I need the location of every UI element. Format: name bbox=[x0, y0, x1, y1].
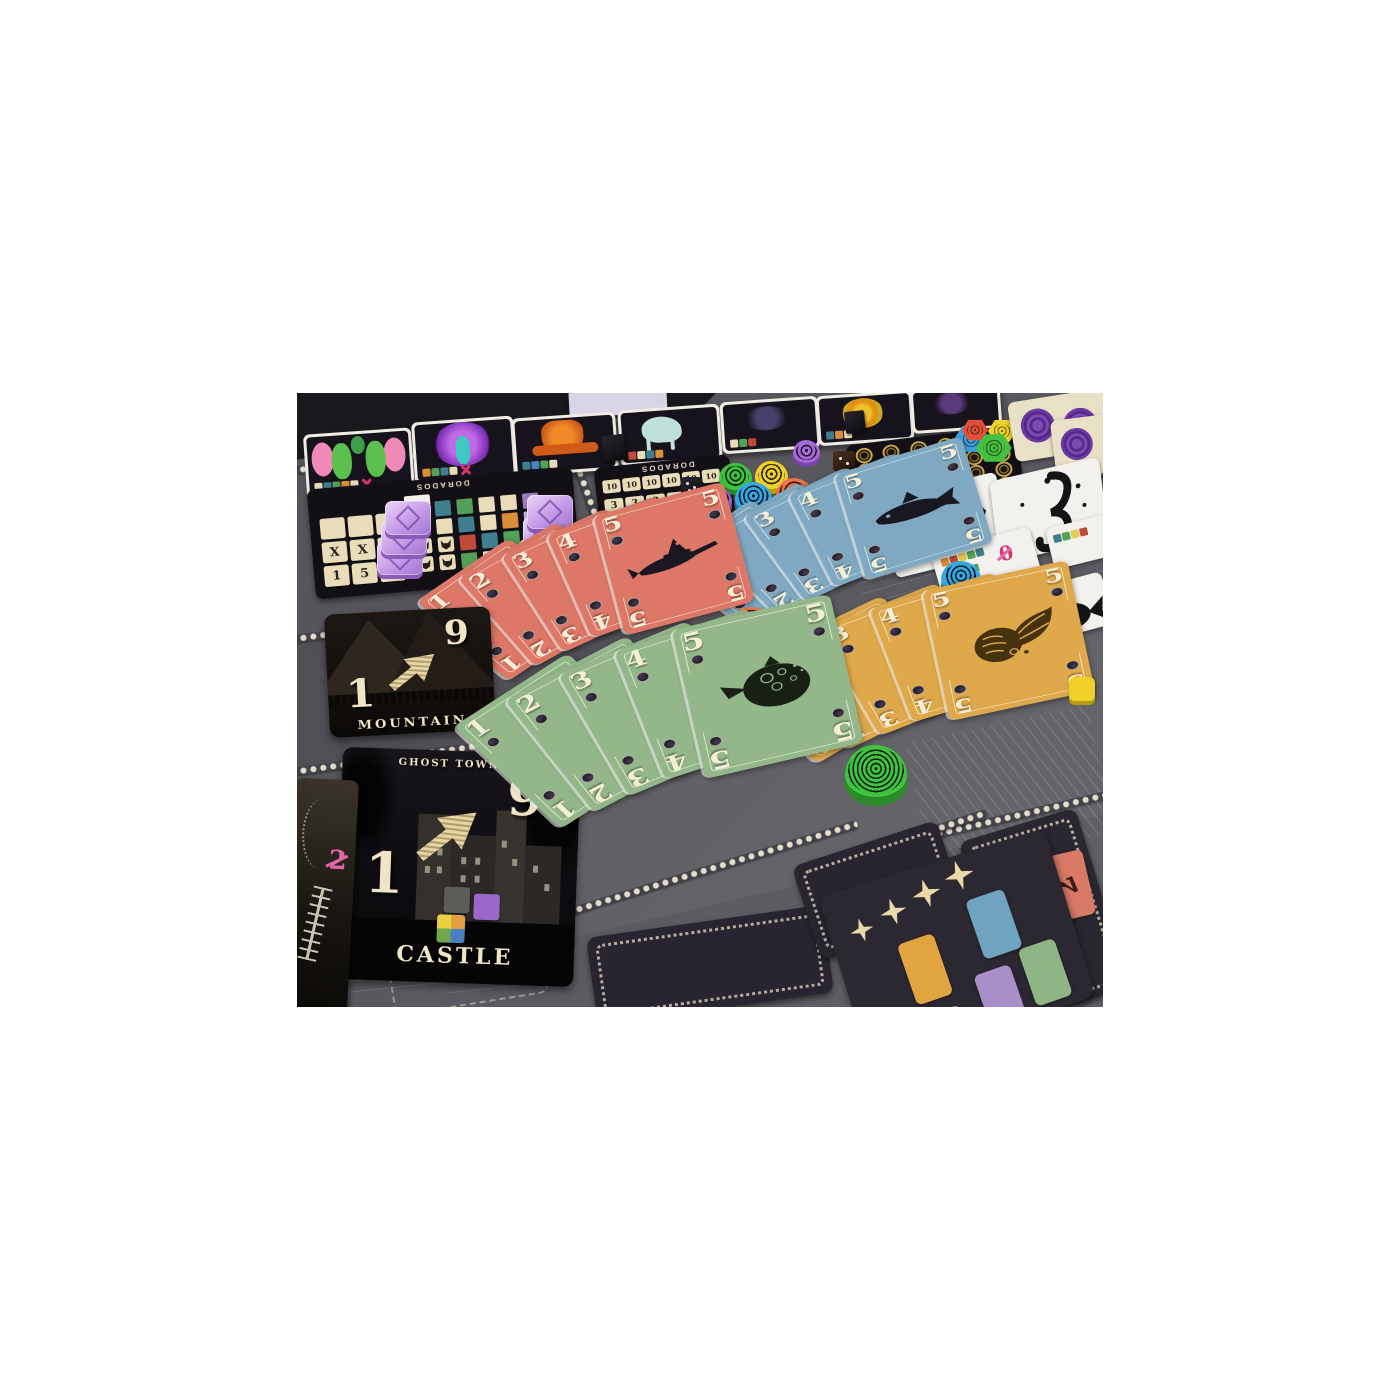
high-value: 9 bbox=[443, 613, 470, 653]
pink-wing-icon bbox=[382, 437, 406, 472]
leaf-icon bbox=[350, 436, 365, 455]
x-tile[interactable]: X bbox=[321, 541, 348, 564]
pufferfish-icon bbox=[701, 642, 834, 731]
dark-art-icon bbox=[931, 393, 972, 416]
card-number: 4 bbox=[832, 559, 858, 582]
blank-tile[interactable] bbox=[319, 517, 346, 540]
x-mark-icon bbox=[460, 465, 471, 476]
number-tile[interactable]: 1 bbox=[323, 564, 350, 587]
gray-resource-square bbox=[443, 887, 470, 914]
purple-round-token[interactable] bbox=[793, 440, 820, 463]
card-number: 4 bbox=[555, 530, 581, 554]
card-number: 4 bbox=[877, 605, 902, 628]
swordfish-witch-hat-icon bbox=[620, 523, 729, 595]
low-value: 1 bbox=[345, 670, 377, 717]
castle-silhouette bbox=[523, 845, 562, 928]
card-number: 2 bbox=[584, 779, 616, 807]
green-goal-rect bbox=[1018, 938, 1073, 1007]
green-spirit-icon bbox=[331, 443, 353, 480]
sparkle-icon bbox=[847, 915, 877, 945]
purple-gem-die[interactable] bbox=[527, 495, 573, 529]
card-number: 3 bbox=[567, 667, 597, 695]
fishbone-icon bbox=[305, 887, 325, 960]
fancy-goldfish-icon bbox=[949, 602, 1068, 678]
panel-title: DORADOS bbox=[415, 478, 470, 491]
board-game-photo: DORADOS X X X 1 5 9 DORADOS 10 10 bbox=[297, 393, 1103, 1007]
value-tile[interactable]: 10 bbox=[642, 475, 661, 490]
purple-goal-rect bbox=[973, 964, 1028, 1007]
teal-figure-icon bbox=[455, 436, 471, 465]
low-value: 1 bbox=[364, 840, 405, 907]
yellow-piece[interactable] bbox=[1069, 677, 1095, 701]
purple-gem-die[interactable] bbox=[385, 501, 431, 535]
coin-icon[interactable] bbox=[994, 461, 1013, 478]
sparkle-icon bbox=[876, 895, 910, 929]
blue-goal-rect bbox=[965, 888, 1023, 960]
number-tile[interactable]: 5 bbox=[351, 562, 378, 585]
olive-goal-rect bbox=[925, 1004, 973, 1007]
black-marker-piece[interactable] bbox=[844, 410, 866, 434]
x-tile[interactable]: X bbox=[349, 538, 376, 561]
dark-art-icon bbox=[743, 405, 791, 432]
card-number: 3 bbox=[557, 622, 585, 646]
purple-mandala-icon bbox=[1059, 426, 1095, 462]
black-marker-piece[interactable] bbox=[601, 434, 626, 463]
value-tile[interactable]: 10 bbox=[662, 473, 681, 488]
card-number: 3 bbox=[875, 707, 902, 730]
region-label: GHOST TOWN bbox=[398, 757, 500, 772]
tile-number-strip bbox=[628, 450, 663, 460]
tile-number-strip bbox=[730, 438, 756, 448]
cat-tile bbox=[439, 554, 456, 571]
card-number: 4 bbox=[590, 609, 616, 633]
zero-score: 0 bbox=[996, 540, 1016, 567]
card-number: 4 bbox=[912, 694, 937, 717]
multicolor-resource-square bbox=[436, 914, 465, 943]
value-tile[interactable]: 10 bbox=[701, 468, 720, 483]
card-number: 4 bbox=[662, 747, 690, 774]
blank-tile[interactable] bbox=[347, 514, 374, 537]
sparkle-icon bbox=[908, 875, 944, 911]
purple-resource-square bbox=[473, 894, 500, 921]
orange-goal-rect bbox=[897, 933, 954, 1006]
cod-fish-icon bbox=[862, 474, 966, 542]
sparkle-icon bbox=[940, 857, 977, 894]
value-tile[interactable]: 10 bbox=[602, 479, 621, 494]
value-tile[interactable]: 10 bbox=[622, 477, 641, 492]
card-number: 4 bbox=[622, 646, 650, 673]
cat-tile bbox=[437, 536, 454, 553]
card-number: 3 bbox=[622, 763, 652, 791]
